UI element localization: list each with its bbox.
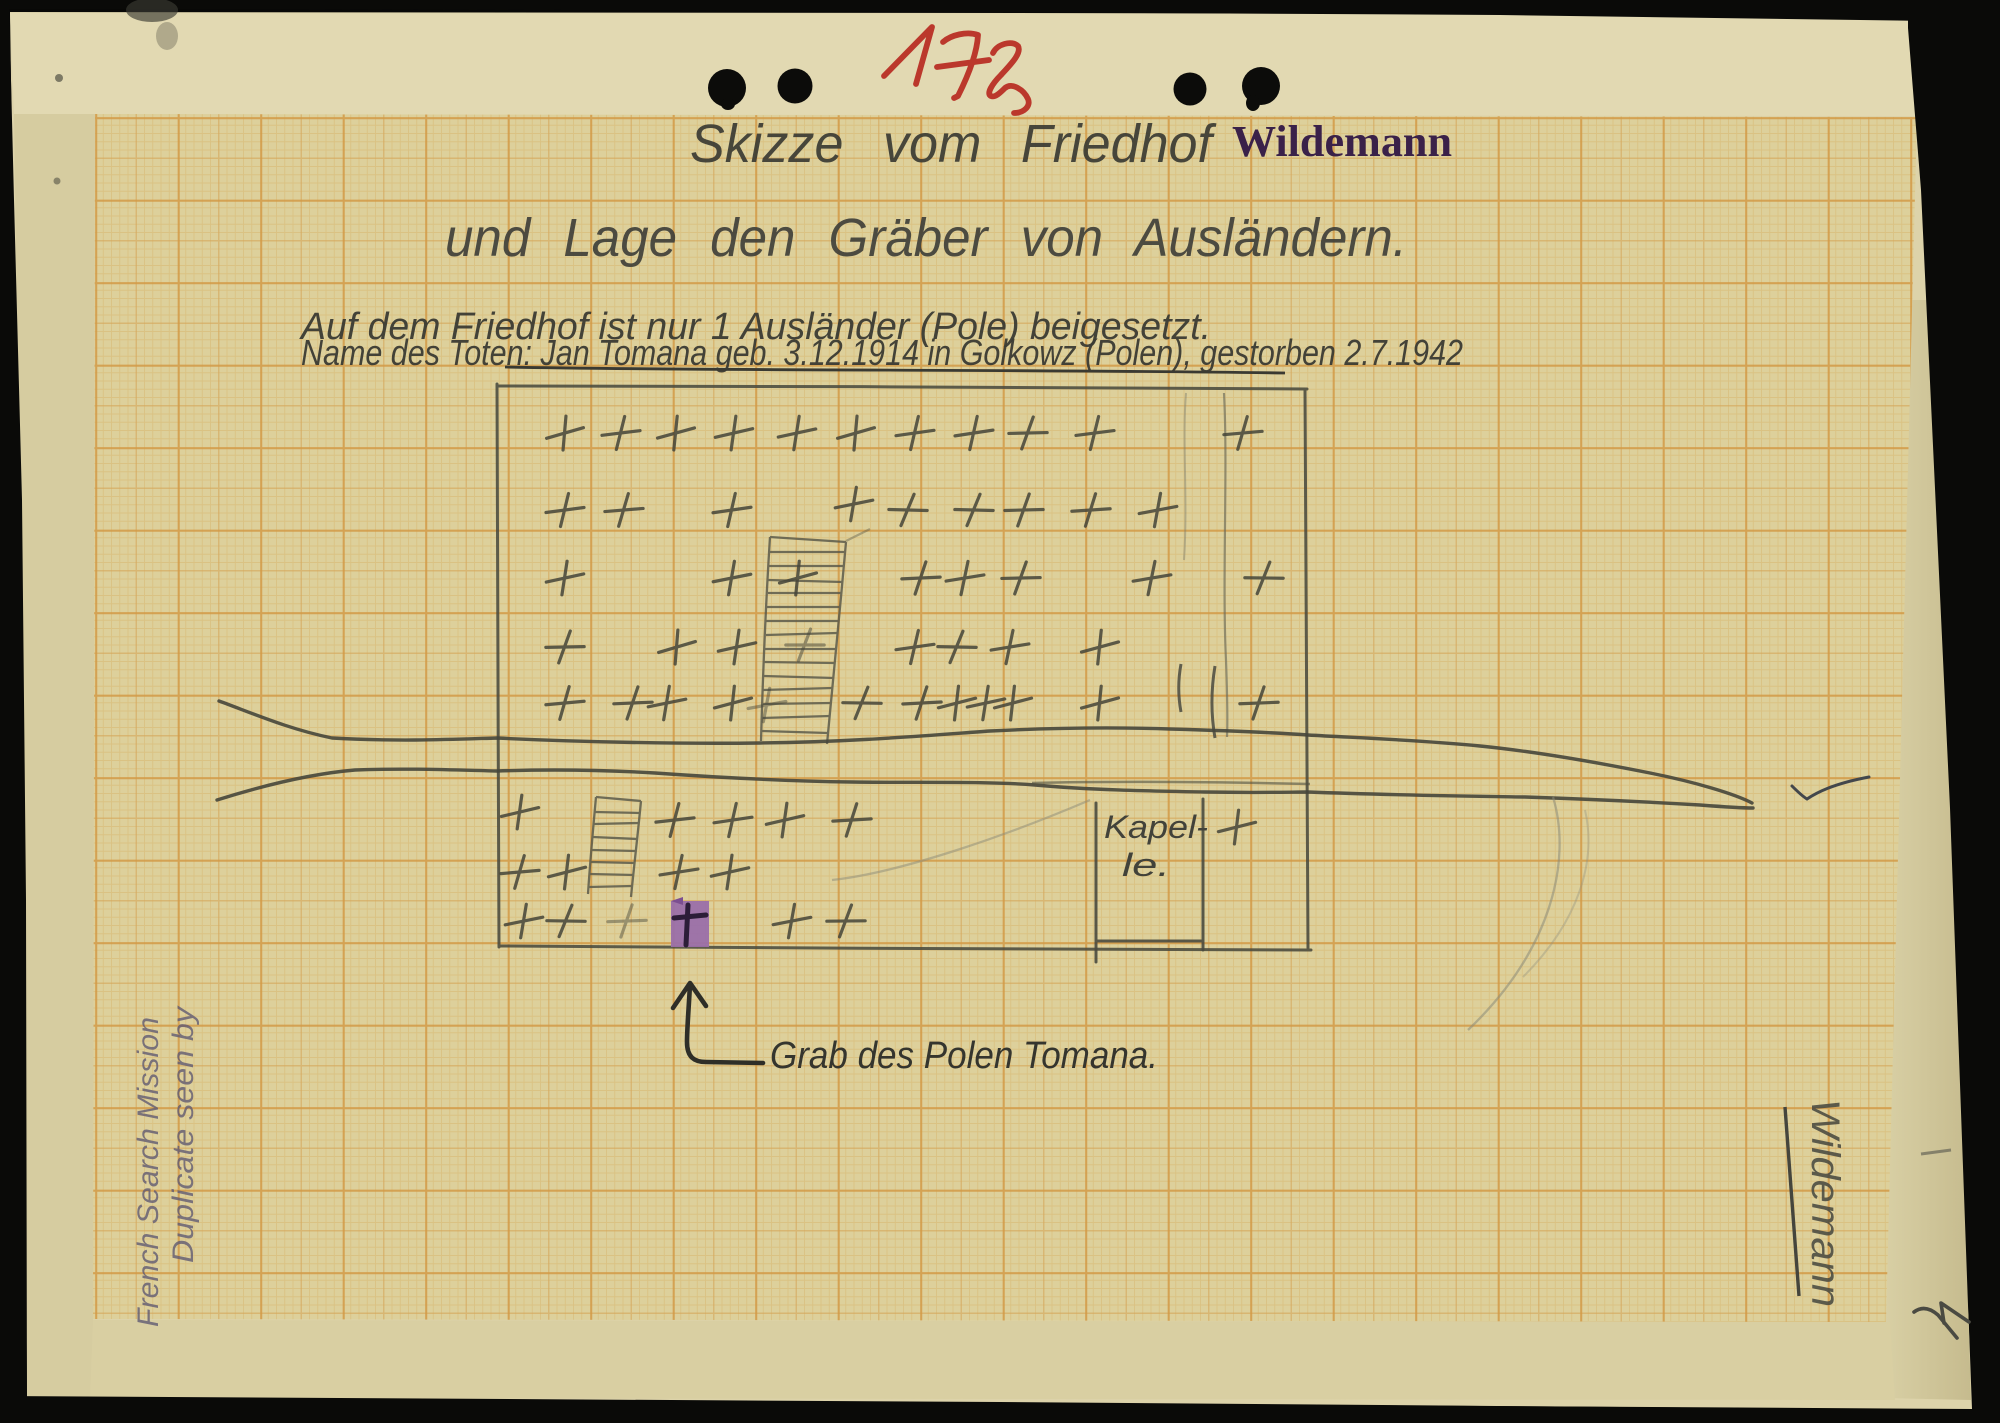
svg-text:Kapel-: Kapel- <box>1104 809 1208 845</box>
svg-text:und Lage den Gräber von Auslän: und Lage den Gräber von Ausländern. <box>445 208 1407 268</box>
svg-text:Name des Toten: Jan Tomana g: Name des Toten: Jan Tomana geb. 3.12.191… <box>301 332 1463 373</box>
svg-text:Duplicate seen by: Duplicate seen by <box>167 1005 200 1263</box>
svg-text:French Search Mission: French Search Mission <box>132 1017 165 1327</box>
svg-text:Wildemann: Wildemann <box>1232 117 1452 166</box>
svg-text:Grab des Polen Tomana.: Grab des Polen Tomana. <box>770 1035 1158 1077</box>
svg-text:Wildemann: Wildemann <box>1803 1099 1847 1307</box>
svg-text:Skizze vom Friedhof: Skizze vom Friedhof <box>690 114 1217 174</box>
svg-text:le.: le. <box>1122 847 1170 883</box>
